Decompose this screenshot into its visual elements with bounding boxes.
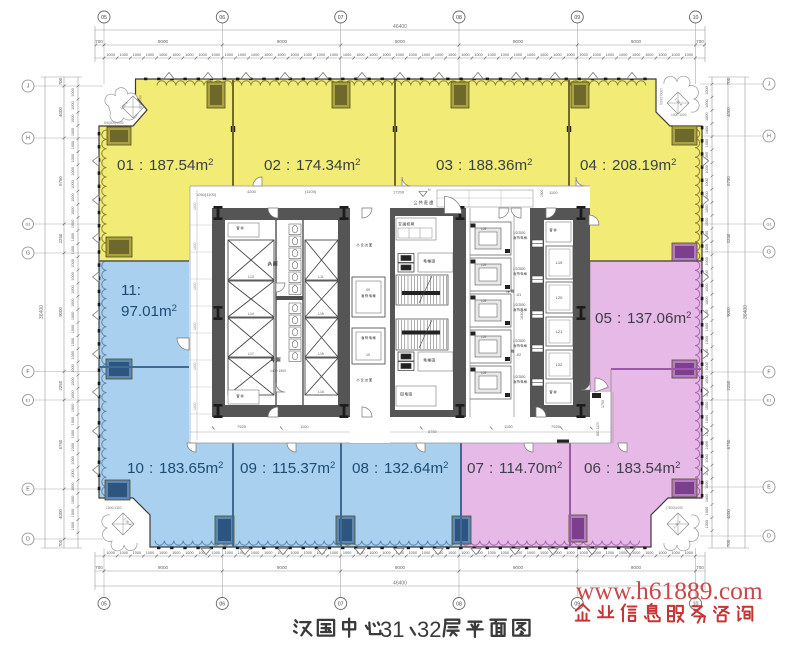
- svg-text:www.h61889.com: www.h61889.com: [576, 576, 763, 605]
- svg-text:L09: L09: [481, 227, 487, 231]
- svg-text::: :: [602, 157, 606, 174]
- svg-text:L21: L21: [556, 329, 563, 334]
- svg-text:1400 1500: 1400 1500: [270, 369, 286, 373]
- svg-text:1000: 1000: [645, 551, 653, 555]
- svg-text:F: F: [767, 370, 770, 376]
- svg-text:97.01m2: 97.01m2: [121, 303, 177, 320]
- svg-text:1000: 1000: [705, 113, 709, 121]
- svg-text:1000: 1000: [119, 551, 127, 555]
- svg-text:1000: 1000: [277, 53, 285, 57]
- svg-text:1000: 1000: [461, 53, 469, 57]
- svg-text:1000: 1000: [540, 53, 548, 57]
- svg-text:03: 03: [436, 157, 453, 174]
- svg-text:1750: 1750: [601, 400, 605, 408]
- svg-text:1000: 1000: [193, 242, 197, 250]
- svg-text:G: G: [26, 251, 30, 257]
- svg-text:L09: L09: [481, 371, 487, 375]
- svg-text:L15: L15: [318, 312, 324, 316]
- svg-text::: :: [286, 157, 290, 174]
- svg-text:1000: 1000: [579, 53, 587, 57]
- svg-text:1000: 1000: [317, 53, 325, 57]
- svg-text:L11: L11: [318, 275, 324, 279]
- svg-text:1000: 1000: [71, 259, 75, 267]
- svg-text:1/2/2800: 1/2/2800: [513, 267, 526, 271]
- svg-text:4200: 4200: [247, 189, 257, 194]
- svg-text:09: 09: [240, 460, 257, 477]
- svg-text:1000: 1000: [705, 283, 709, 291]
- svg-text:46400: 46400: [393, 24, 407, 30]
- svg-text:1100: 1100: [549, 190, 558, 195]
- svg-text:1100: 1100: [300, 424, 309, 429]
- svg-text:1000: 1000: [671, 53, 679, 57]
- svg-text:08: 08: [352, 460, 369, 477]
- svg-text:1000: 1000: [487, 53, 495, 57]
- svg-text:1000: 1000: [193, 282, 197, 290]
- svg-text:L09: L09: [481, 335, 487, 339]
- svg-text:4000: 4000: [726, 107, 731, 117]
- svg-text:1000: 1000: [705, 441, 709, 449]
- svg-text:1000: 1000: [71, 482, 75, 490]
- svg-text:1000: 1000: [193, 202, 197, 210]
- svg-text:1000: 1000: [146, 551, 154, 555]
- svg-text:1000: 1000: [71, 338, 75, 346]
- svg-text:1000: 1000: [632, 551, 640, 555]
- svg-text:6750: 6750: [726, 439, 731, 449]
- svg-text:1000: 1000: [658, 53, 666, 57]
- svg-text:700: 700: [696, 565, 704, 570]
- svg-text:L20: L20: [556, 295, 563, 300]
- svg-text:32: 32: [417, 617, 441, 642]
- svg-text:9000: 9000: [158, 565, 169, 570]
- svg-text:183.65m2: 183.65m2: [159, 460, 223, 477]
- svg-text:1000: 1000: [211, 551, 219, 555]
- svg-text:1000: 1000: [71, 233, 75, 241]
- svg-text:04: 04: [580, 157, 597, 174]
- svg-text:1000: 1000: [705, 480, 709, 488]
- svg-text:9000: 9000: [58, 307, 63, 317]
- svg-text:E1: E1: [767, 399, 772, 403]
- svg-text:9000: 9000: [277, 39, 288, 44]
- svg-text:1000: 1000: [422, 551, 430, 555]
- svg-text:L16: L16: [318, 390, 324, 394]
- svg-text:1000: 1000: [185, 551, 193, 555]
- svg-text:1000: 1000: [238, 53, 246, 57]
- svg-text:1000: 1000: [71, 509, 75, 517]
- svg-text:1000: 1000: [514, 53, 522, 57]
- svg-text:1000: 1000: [71, 522, 75, 530]
- svg-text:1000: 1000: [193, 362, 197, 370]
- svg-text:06: 06: [584, 460, 601, 477]
- svg-text:1000: 1000: [593, 53, 601, 57]
- svg-text:D: D: [26, 537, 30, 543]
- svg-text:(7800)1000: (7800)1000: [666, 506, 683, 510]
- svg-text:1000: 1000: [658, 551, 666, 555]
- svg-text:1000: 1000: [632, 53, 640, 57]
- svg-text:1000: 1000: [193, 402, 197, 410]
- svg-text:1000: 1000: [705, 165, 709, 173]
- svg-text:6750: 6750: [58, 439, 63, 449]
- svg-text:1000: 1000: [705, 99, 709, 107]
- svg-text:1000: 1000: [71, 128, 75, 136]
- svg-text:1000: 1000: [71, 101, 75, 109]
- svg-text:16300: 16300: [520, 309, 524, 320]
- svg-text:1000: 1000: [303, 551, 311, 555]
- svg-text:05: 05: [101, 15, 107, 21]
- svg-text:E: E: [767, 485, 771, 491]
- svg-text:1000: 1000: [71, 496, 75, 504]
- svg-text:1000: 1000: [705, 494, 709, 502]
- svg-text:1000: 1000: [705, 205, 709, 213]
- svg-text:1000: 1000: [71, 443, 75, 451]
- svg-text:1000: 1000: [382, 53, 390, 57]
- svg-text:1000: 1000: [71, 272, 75, 280]
- svg-text:1000: 1000: [71, 351, 75, 359]
- svg-text:1000: 1000: [119, 53, 127, 57]
- svg-text:1000: 1000: [251, 53, 259, 57]
- svg-text:1000: 1000: [705, 244, 709, 252]
- svg-text:1000: 1000: [251, 551, 259, 555]
- svg-text:-01: -01: [516, 292, 523, 297]
- svg-text::: :: [606, 460, 610, 477]
- svg-text:115.37m2: 115.37m2: [272, 460, 335, 477]
- svg-text:10: 10: [366, 353, 370, 357]
- svg-text:1000: 1000: [619, 53, 627, 57]
- svg-text:10: 10: [693, 15, 699, 21]
- svg-text:1/2/2800: 1/2/2800: [513, 339, 526, 343]
- svg-text:1000: 1000: [579, 551, 587, 555]
- svg-text:1000: 1000: [71, 141, 75, 149]
- svg-text:J: J: [27, 84, 30, 90]
- svg-text:G1: G1: [766, 223, 771, 227]
- svg-text:1000 1000: 1000 1000: [671, 113, 687, 117]
- svg-text:1000: 1000: [106, 53, 114, 57]
- svg-text:700: 700: [726, 77, 731, 85]
- svg-text::: :: [139, 157, 143, 174]
- svg-text:31: 31: [380, 617, 404, 642]
- svg-text:1000: 1000: [705, 507, 709, 515]
- svg-text:1000: 1000: [705, 323, 709, 331]
- svg-text:1000: 1000: [343, 551, 351, 555]
- svg-text:1000: 1000: [448, 53, 456, 57]
- svg-text:1000: 1000: [566, 551, 574, 555]
- svg-text:1000: 1000: [343, 53, 351, 57]
- svg-text::: :: [489, 460, 493, 477]
- svg-text:1000: 1000: [540, 551, 548, 555]
- svg-text:5/6(300)1000: 5/6(300)1000: [104, 121, 124, 125]
- svg-text:1000: 1000: [705, 257, 709, 265]
- svg-text:9000: 9000: [395, 565, 406, 570]
- svg-text:1000: 1000: [487, 551, 495, 555]
- svg-text:1000: 1000: [71, 364, 75, 372]
- svg-text:10: 10: [127, 460, 144, 477]
- svg-text:8750: 8750: [428, 429, 438, 434]
- svg-text:36400: 36400: [39, 305, 45, 319]
- svg-text:09: 09: [366, 288, 370, 292]
- svg-text:(1100): (1100): [305, 189, 317, 194]
- svg-text:02: 02: [264, 157, 281, 174]
- svg-text:4000: 4000: [726, 509, 731, 519]
- svg-text:1000: 1000: [71, 207, 75, 215]
- svg-text:1000: 1000: [159, 53, 167, 57]
- svg-text:1000: 1000: [330, 53, 338, 57]
- svg-text:700: 700: [95, 565, 103, 570]
- svg-text:07: 07: [338, 15, 344, 21]
- svg-text:850 1100: 850 1100: [596, 422, 600, 436]
- svg-text:46400: 46400: [393, 581, 407, 587]
- svg-text:1000: 1000: [705, 218, 709, 226]
- svg-text:07: 07: [338, 601, 344, 607]
- svg-text:1000: 1000: [71, 167, 75, 175]
- svg-text:36400: 36400: [743, 305, 749, 319]
- svg-text:700: 700: [58, 539, 63, 547]
- svg-text:L09: L09: [481, 299, 487, 303]
- svg-text:1000: 1000: [356, 53, 364, 57]
- svg-text:1000: 1000: [198, 53, 206, 57]
- svg-text:6750: 6750: [726, 176, 731, 186]
- svg-text:1000: 1000: [71, 312, 75, 320]
- svg-text:1000: 1000: [330, 551, 338, 555]
- svg-text:1000: 1000: [705, 139, 709, 147]
- svg-text:132.64m2: 132.64m2: [384, 460, 448, 477]
- svg-text:9000: 9000: [395, 39, 406, 44]
- svg-text:E: E: [26, 487, 30, 493]
- svg-text:700: 700: [58, 77, 63, 85]
- svg-text:1000: 1000: [71, 193, 75, 201]
- svg-text:1000: 1000: [606, 53, 614, 57]
- svg-text:H: H: [767, 134, 771, 140]
- svg-text:F: F: [26, 369, 29, 375]
- svg-text:E1: E1: [26, 399, 31, 403]
- svg-text:1000: 1000: [705, 454, 709, 462]
- svg-text:9000: 9000: [631, 39, 642, 44]
- svg-text:1100: 1100: [504, 424, 513, 429]
- svg-text:05: 05: [101, 601, 107, 607]
- svg-text:1000: 1000: [527, 53, 535, 57]
- svg-text:1000: 1000: [527, 551, 535, 555]
- svg-text:187.54m2: 187.54m2: [149, 157, 213, 174]
- svg-text:L09: L09: [481, 263, 487, 267]
- svg-text:1050(1100): 1050(1100): [196, 192, 217, 197]
- svg-text:L22: L22: [556, 362, 563, 367]
- svg-text:1000: 1000: [225, 53, 233, 57]
- svg-text:6750: 6750: [58, 176, 63, 186]
- svg-text:1000: 1000: [193, 322, 197, 330]
- svg-text:9000: 9000: [513, 565, 524, 570]
- svg-text:09: 09: [574, 15, 580, 21]
- svg-text::: :: [617, 310, 621, 327]
- svg-text:1/2/2800: 1/2/2800: [513, 375, 526, 379]
- svg-text:2250: 2250: [726, 380, 731, 390]
- svg-text:1000: 1000: [566, 53, 574, 57]
- svg-text:700: 700: [696, 39, 704, 44]
- svg-text:1000: 1000: [71, 325, 75, 333]
- svg-text:208.19m2: 208.19m2: [612, 157, 676, 174]
- svg-text:08: 08: [456, 15, 462, 21]
- svg-text:1000: 1000: [290, 551, 298, 555]
- svg-text:1000: 1000: [172, 551, 180, 555]
- svg-text:1000: 1000: [264, 53, 272, 57]
- svg-text:06: 06: [219, 601, 225, 607]
- svg-text:1000: 1000: [211, 53, 219, 57]
- svg-text:1000: 1000: [71, 115, 75, 123]
- svg-text:1000: 1000: [71, 299, 75, 307]
- svg-text:1000: 1000: [159, 551, 167, 555]
- svg-text:1/2/2800: 1/2/2800: [513, 303, 526, 307]
- svg-text:1000: 1000: [501, 53, 509, 57]
- svg-text:1000: 1000: [685, 551, 693, 555]
- svg-text:1000: 1000: [395, 53, 403, 57]
- svg-text:1000: 1000: [303, 53, 311, 57]
- svg-text:1000: 1000: [185, 53, 193, 57]
- svg-text:700: 700: [95, 39, 103, 44]
- svg-text:1000(1000): 1000(1000): [659, 88, 663, 105]
- svg-text:9000: 9000: [513, 39, 524, 44]
- svg-text:137.06m2: 137.06m2: [627, 310, 691, 327]
- svg-text:1000: 1000: [71, 377, 75, 385]
- svg-text:1000: 1000: [705, 402, 709, 410]
- svg-text::: :: [458, 157, 462, 174]
- svg-text:700: 700: [726, 539, 731, 547]
- svg-text:1000: 1000: [705, 520, 709, 528]
- svg-text:G1: G1: [25, 223, 30, 227]
- svg-text:1000: 1000: [501, 551, 509, 555]
- svg-text:114.70m2: 114.70m2: [499, 460, 562, 477]
- svg-text:1000: 1000: [290, 53, 298, 57]
- svg-text:1000: 1000: [705, 336, 709, 344]
- svg-text:L14: L14: [248, 312, 254, 316]
- svg-text:1000: 1000: [606, 551, 614, 555]
- svg-text:4000: 4000: [58, 107, 63, 117]
- svg-text:1000: 1000: [409, 551, 417, 555]
- svg-text:L15: L15: [318, 352, 324, 356]
- svg-text:1000: 1000: [705, 297, 709, 305]
- svg-text:L19: L19: [556, 260, 563, 265]
- svg-text:H: H: [26, 136, 30, 142]
- svg-text:1000: 1000: [705, 362, 709, 370]
- svg-text:1000: 1000: [369, 53, 377, 57]
- svg-text:1000: 1000: [133, 551, 141, 555]
- svg-text:1000: 1000: [71, 180, 75, 188]
- svg-text:300/1000: 300/1000: [138, 95, 142, 109]
- svg-text:J: J: [768, 82, 771, 88]
- svg-text:1000: 1000: [645, 53, 653, 57]
- svg-text:1000: 1000: [705, 375, 709, 383]
- svg-text:1000: 1000: [106, 551, 114, 555]
- svg-text:174.34m2: 174.34m2: [296, 157, 360, 174]
- svg-text::: :: [374, 460, 378, 477]
- svg-text:G: G: [767, 250, 771, 256]
- svg-text:9000: 9000: [631, 565, 642, 570]
- svg-text:1000: 1000: [705, 415, 709, 423]
- svg-text:D: D: [767, 534, 771, 540]
- svg-text:1000: 1000: [71, 417, 75, 425]
- svg-text:11:: 11:: [121, 282, 141, 299]
- svg-text:1000: 1000: [705, 86, 709, 94]
- svg-text:1/2/2800: 1/2/2800: [513, 231, 526, 235]
- svg-text:1000: 1000: [71, 430, 75, 438]
- svg-text:1000: 1000: [685, 53, 693, 57]
- svg-text:7925: 7925: [237, 424, 247, 429]
- svg-text:1000: 1000: [225, 551, 233, 555]
- svg-text:L13: L13: [248, 275, 254, 279]
- svg-text:1000: 1000: [382, 551, 390, 555]
- svg-text:1000: 1000: [448, 551, 456, 555]
- svg-text:07: 07: [467, 460, 484, 477]
- svg-text:1000: 1000: [705, 178, 709, 186]
- svg-text:1000: 1000: [71, 246, 75, 254]
- svg-text:1000: 1000: [71, 390, 75, 398]
- svg-text:1000: 1000: [474, 53, 482, 57]
- svg-text:7925: 7925: [551, 424, 561, 429]
- svg-text:06: 06: [219, 15, 225, 21]
- svg-text:1000: 1000: [71, 88, 75, 96]
- svg-text:1000: 1000: [71, 285, 75, 293]
- svg-text:2250: 2250: [726, 233, 731, 243]
- svg-text:183.54m2: 183.54m2: [616, 460, 680, 477]
- svg-text:1000: 1000: [133, 53, 141, 57]
- svg-text:9000: 9000: [277, 565, 288, 570]
- svg-text:L17: L17: [248, 352, 254, 356]
- svg-text:2250: 2250: [58, 380, 63, 390]
- svg-text::: :: [149, 460, 153, 477]
- svg-text:1000: 1000: [553, 53, 561, 57]
- svg-text:05: 05: [595, 310, 612, 327]
- svg-text:1000: 1000: [71, 220, 75, 228]
- svg-text:1000: 1000: [619, 551, 627, 555]
- svg-text:1000: 1000: [71, 154, 75, 162]
- svg-text:188.36m2: 188.36m2: [468, 157, 532, 174]
- svg-text:01: 01: [117, 157, 134, 174]
- svg-text:17200: 17200: [393, 190, 405, 195]
- svg-text:1000: 1000: [146, 53, 154, 57]
- svg-text:1000: 1000: [461, 551, 469, 555]
- svg-text:1000: 1000: [71, 404, 75, 412]
- svg-text::: :: [262, 460, 266, 477]
- svg-text:1000: 1000: [264, 551, 272, 555]
- svg-text:1000: 1000: [71, 456, 75, 464]
- svg-text:1500: 1500: [540, 189, 544, 197]
- svg-text:4000: 4000: [58, 509, 63, 519]
- svg-text:9000: 9000: [158, 39, 169, 44]
- svg-text:1000: 1000: [671, 551, 679, 555]
- svg-text:-02: -02: [516, 352, 523, 357]
- svg-text:1000: 1000: [369, 551, 377, 555]
- svg-text:1000/1300: 1000/1300: [106, 506, 122, 510]
- svg-text:08: 08: [456, 601, 462, 607]
- svg-text:1000: 1000: [71, 469, 75, 477]
- svg-text:2250: 2250: [58, 233, 63, 243]
- svg-text:1000: 1000: [705, 126, 709, 134]
- svg-text:1000: 1000: [172, 53, 180, 57]
- svg-text:9000: 9000: [726, 307, 731, 317]
- svg-text:1000: 1000: [409, 53, 417, 57]
- svg-text:1000: 1000: [435, 53, 443, 57]
- svg-text:1000: 1000: [422, 53, 430, 57]
